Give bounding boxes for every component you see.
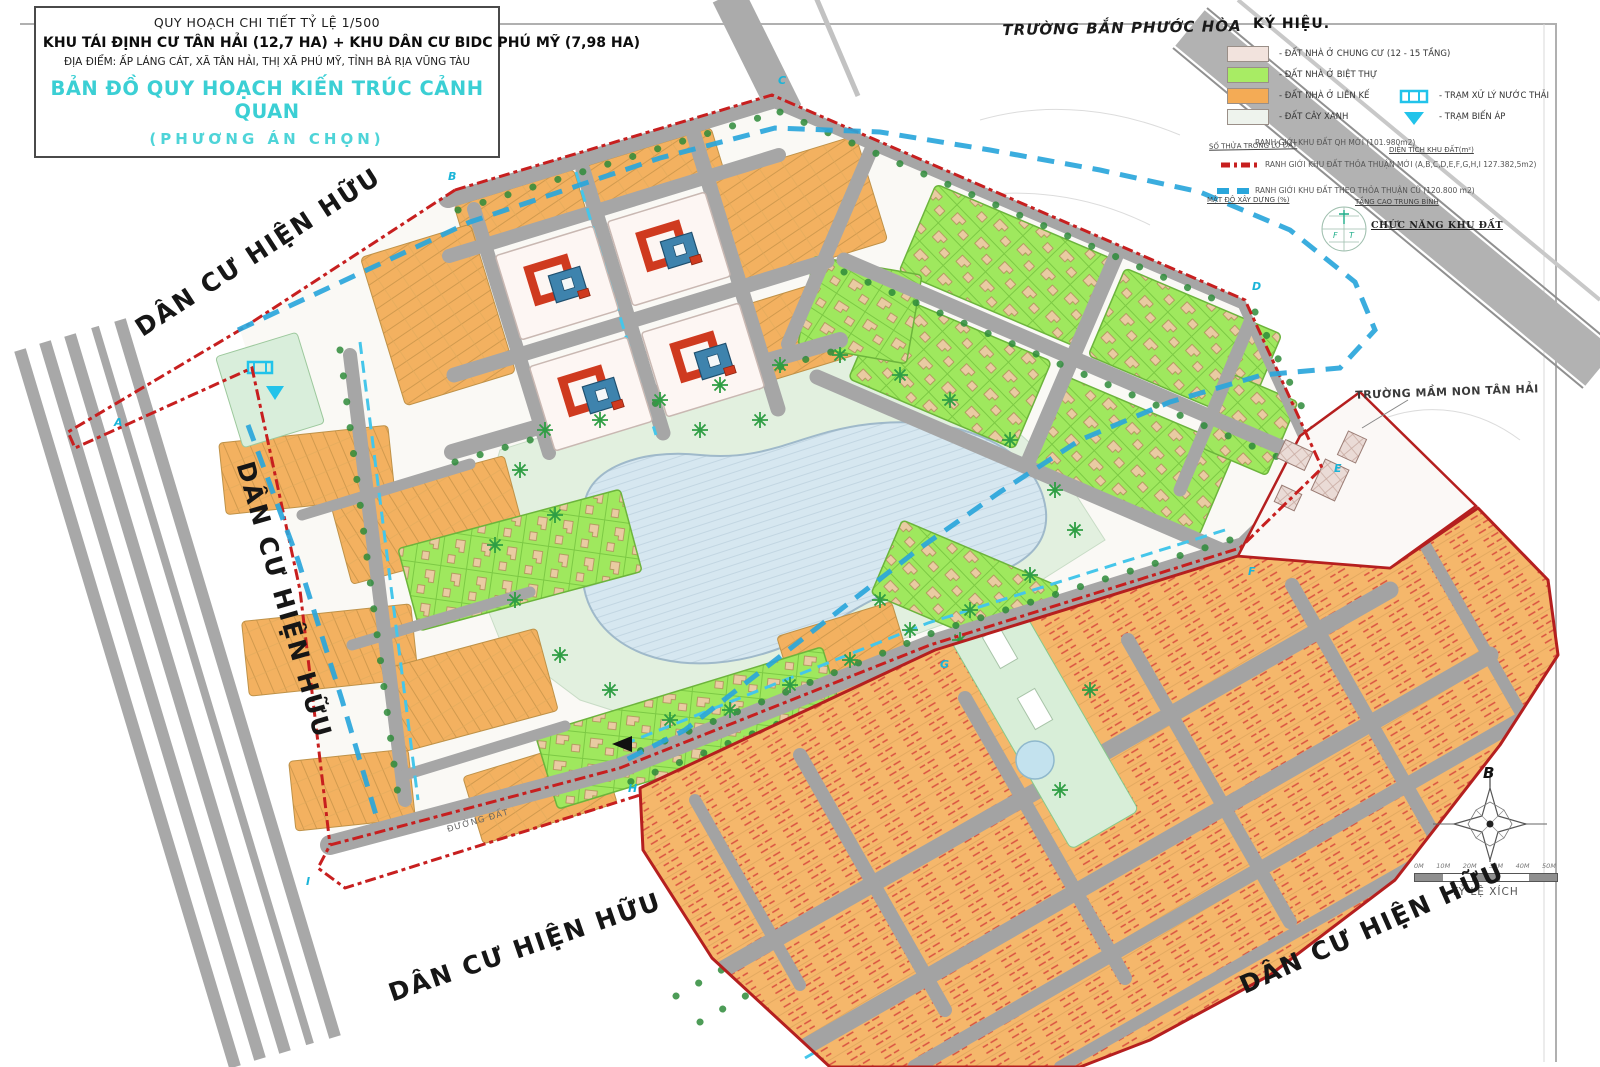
svg-text:B: B [448,170,456,183]
svg-text:G: G [940,658,949,671]
svg-text:F: F [1333,231,1338,240]
svg-text:H: H [628,782,637,795]
svg-text:I: I [306,875,310,888]
red-boundary-legend-icon [1221,160,1259,170]
legend-villa-label: - ĐẤT NHÀ Ở BIỆT THỰ [1279,70,1377,80]
legend-rowhouse-label: - ĐẤT NHÀ Ở LIÊN KẾ [1279,91,1369,101]
wastewater-legend-icon [1398,89,1432,104]
map-title: BẢN ĐỒ QUY HOẠCH KIẾN TRÚC CẢNH QUAN [36,77,498,123]
svg-text:A: A [113,416,123,429]
project-location: ĐỊA ĐIỂM: ẤP LÁNG CÁT, XÃ TÂN HẢI, THỊ X… [36,56,498,68]
title-block: QUY HOẠCH CHI TIẾT TỶ LỆ 1/500 KHU TÁI Đ… [34,6,500,158]
legend-boundary-old-agreement: RANH GIỚI KHU ĐẤT THEO THỎA THUẬN CŨ (12… [1255,186,1475,195]
swatch-rowhouse [1227,88,1269,104]
legend-heading: KÝ HIỆU. [1253,16,1330,32]
top-roads [728,0,858,112]
function-annotation-diagram: F T [1319,204,1369,254]
annotation-area: DIỆN TÍCH KHU ĐẤT(m²) [1389,146,1474,154]
transformer-legend-icon [1401,109,1427,127]
plan-sheet: A B C D E F G H I ĐƯỜNG ĐẤT QUY HOẠCH CH… [0,0,1600,1067]
blue-boundary-legend-icon [1217,186,1251,196]
legend-transformer-label: - TRẠM BIẾN ÁP [1439,112,1505,122]
svg-text:T: T [1349,231,1355,240]
annotation-function: CHỨC NĂNG KHU ĐẤT [1371,220,1503,231]
annotation-density: MẬT ĐỘ XÂY DỰNG (%) [1207,196,1289,204]
pond [1016,741,1054,779]
map-subtitle: (PHƯƠNG ÁN CHỌN) [36,130,498,148]
svg-text:C: C [778,74,786,87]
plan-scale-line: QUY HOẠCH CHI TIẾT TỶ LỆ 1/500 [36,15,498,30]
compass-north-letter: B [1483,764,1494,782]
svg-text:E: E [1334,462,1342,475]
svg-text:F: F [1248,565,1256,578]
swatch-villa [1227,67,1269,83]
legend-boundary-new-agreement: RANH GIỚI KHU ĐẤT THỎA THUẬN MỚI (A,B,C,… [1265,160,1536,169]
legend: KÝ HIỆU. - ĐẤT NHÀ Ở CHUNG CƯ (12 - 15 T… [1193,10,1578,250]
svg-text:D: D [1252,280,1261,293]
legend-wastewater-label: - TRẠM XỬ LÝ NƯỚC THẢI [1439,91,1549,101]
legend-apartment-label: - ĐẤT NHÀ Ở CHUNG CƯ (12 - 15 TẦNG) [1279,49,1450,59]
compass-star [1454,788,1526,860]
project-name: KHU TÁI ĐỊNH CƯ TÂN HẢI (12,7 HA) + KHU … [43,35,491,51]
legend-greenery-label: - ĐẤT CÂY XANH [1279,112,1348,122]
swatch-greenery [1227,109,1269,125]
swatch-apartment [1227,46,1269,62]
